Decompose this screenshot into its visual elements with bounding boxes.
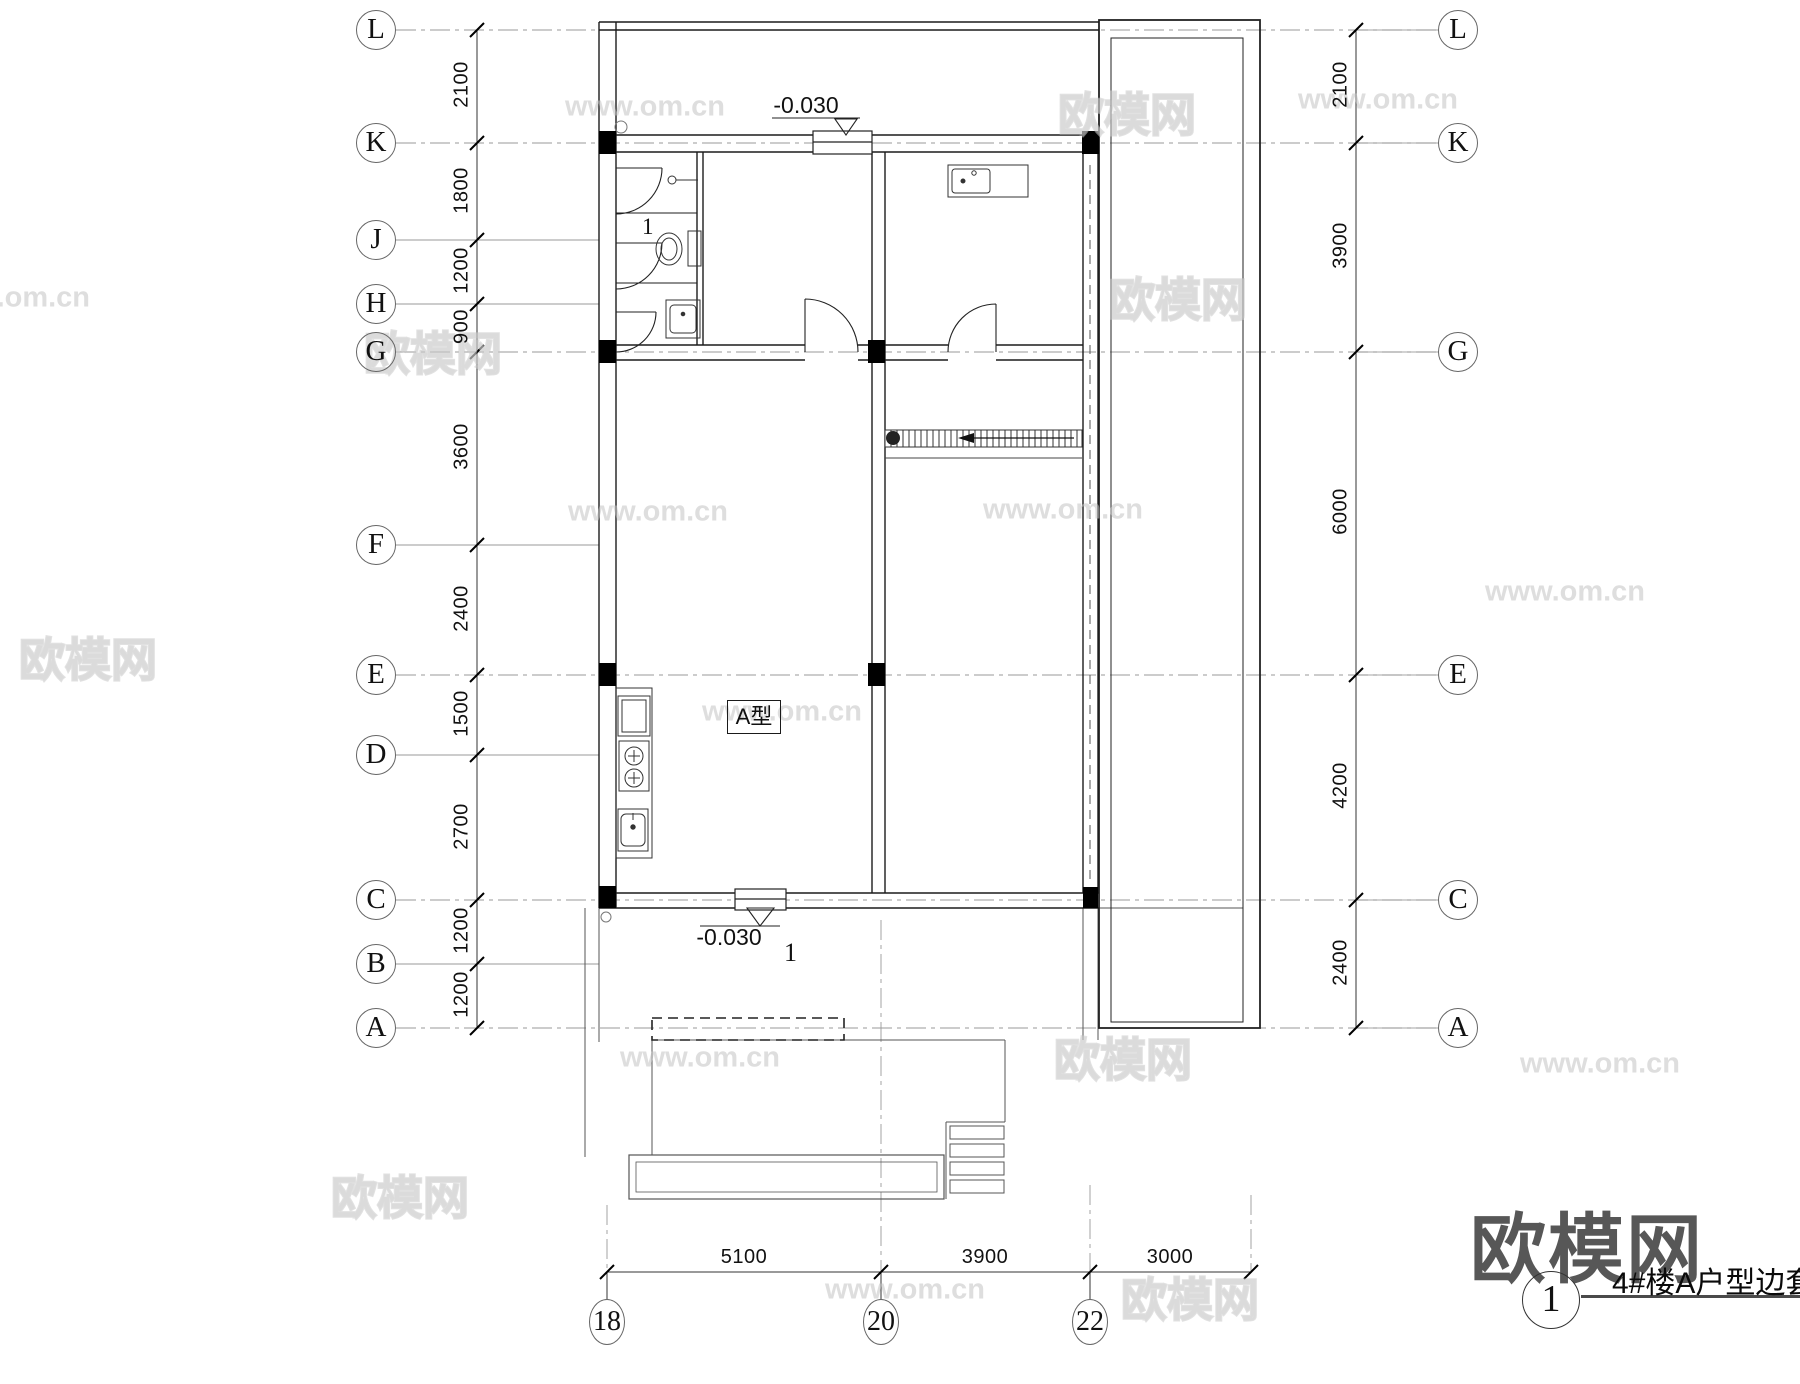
axis-bubble-bottom-22: 22 (1072, 1299, 1108, 1345)
watermark: 欧模网 (19, 624, 157, 690)
axis-bubble-left-A: A (356, 1008, 396, 1048)
axis-bubble-left-F: F (356, 525, 396, 565)
watermark: www.om.cn (1298, 84, 1458, 117)
elevation-label-top: -0.030 (746, 92, 866, 119)
stair-post (886, 431, 900, 445)
door-swings (616, 168, 996, 352)
dim-label: 2700 (451, 782, 474, 872)
dimension-ticks (470, 23, 1363, 1279)
floor-plan-linework (0, 0, 1800, 1384)
axis-bubble-left-C: C (356, 880, 396, 920)
watermark: 欧模网 (1121, 1264, 1259, 1330)
watermark: www.om.cn (1520, 1048, 1680, 1081)
walls (599, 22, 1099, 908)
drain-circle (601, 912, 611, 922)
dim-label: 2100 (451, 40, 474, 130)
dim-label: 2400 (1330, 918, 1353, 1008)
axis-bubble-left-H: H (356, 284, 396, 324)
sheet-number-bubble: 1 (1522, 1271, 1580, 1329)
bathroom-number-label: 1 (642, 214, 654, 240)
dimension-lines (477, 30, 1438, 1300)
watermark: www.om.cn (0, 282, 90, 315)
dim-label: 6000 (1330, 467, 1353, 557)
elevation-label-bottom: -0.030 (669, 924, 789, 951)
axis-bubble-bottom-20: 20 (863, 1299, 899, 1345)
entry-number-label: 1 (784, 938, 797, 968)
watermark: www.om.cn (702, 696, 862, 729)
watermark: 欧模网 (331, 1162, 469, 1228)
watermark: www.om.cn (565, 91, 725, 124)
watermark: www.om.cn (825, 1274, 985, 1307)
unit-type-label: A型 (727, 700, 781, 734)
dim-label: 900 (451, 282, 474, 372)
floor-plan-screenshot: www.om.cn www.om.cn www.om.cn www.om.cn … (0, 0, 1800, 1384)
dim-label: 3900 (940, 1246, 1030, 1269)
axis-bubble-right-K: K (1438, 123, 1478, 163)
axis-bubble-right-A: A (1438, 1008, 1478, 1048)
watermark: www.om.cn (568, 496, 728, 529)
bathroom-fixtures (656, 176, 701, 338)
axis-bubble-right-C: C (1438, 880, 1478, 920)
dim-label: 5100 (699, 1246, 789, 1269)
axis-bubble-left-G: G (356, 332, 396, 372)
axis-bubble-bottom-18: 18 (589, 1299, 625, 1345)
axis-bubble-left-L: L (356, 10, 396, 50)
dim-label: 2400 (451, 564, 474, 654)
grid-lines (396, 30, 1438, 1296)
towel-hook-icon (668, 176, 676, 184)
axis-bubble-right-L: L (1438, 10, 1478, 50)
wall-sink-counter (948, 165, 1028, 197)
entry-door-boxes (735, 131, 872, 910)
drawing-title: 4#楼A户型边套 (1612, 1258, 1800, 1302)
dim-label: 2100 (1330, 40, 1353, 130)
watermark: 欧模网 (1054, 1024, 1192, 1090)
stairs (885, 430, 1082, 458)
entry-canopy-dashed (652, 1018, 844, 1040)
axis-bubble-left-B: B (356, 944, 396, 984)
dim-label: 1200 (451, 950, 474, 1040)
dim-label: 1500 (451, 669, 474, 759)
axis-bubble-left-J: J (356, 220, 396, 260)
axis-bubble-left-E: E (356, 655, 396, 695)
axis-bubble-right-E: E (1438, 655, 1478, 695)
dim-label: 4200 (1330, 741, 1353, 831)
watermark: 欧模网 (1058, 79, 1196, 145)
dim-label: 1800 (451, 146, 474, 236)
watermark: 欧模网 (1109, 264, 1247, 330)
axis-bubble-left-K: K (356, 123, 396, 163)
axis-bubble-left-D: D (356, 735, 396, 775)
dim-label: 3900 (1330, 201, 1353, 291)
toilet-tank (688, 231, 701, 266)
axis-bubble-right-G: G (1438, 332, 1478, 372)
cabinet (618, 696, 650, 736)
watermark: www.om.cn (1485, 576, 1645, 609)
dim-label: 3000 (1125, 1246, 1215, 1269)
watermark: www.om.cn (620, 1042, 780, 1075)
dim-label: 3600 (451, 402, 474, 492)
watermark: www.om.cn (983, 494, 1143, 527)
